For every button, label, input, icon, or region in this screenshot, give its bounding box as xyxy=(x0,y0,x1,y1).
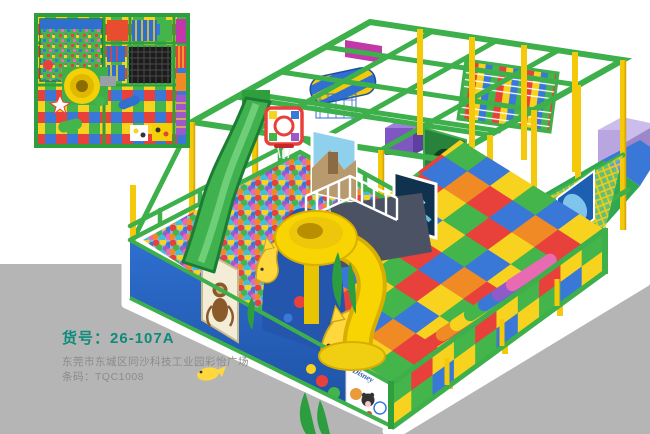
plan-gray-block xyxy=(100,76,116,86)
barcode-line: 条码：TQC1008 xyxy=(62,372,249,384)
product-code-label: 货号： xyxy=(62,330,110,347)
product-code-value: 26-107A xyxy=(110,330,175,347)
company-address: 东莞市东城区同沙科技工业园彩怡广场 xyxy=(62,357,249,369)
plan-magenta-mat xyxy=(176,19,186,43)
plan-striped-mat xyxy=(132,20,157,41)
barcode-value: TQC1008 xyxy=(95,371,144,383)
plan-green-ball xyxy=(95,96,105,106)
catalog-page: Disney xyxy=(0,0,650,434)
barcode-label: 条码： xyxy=(62,371,95,383)
floor-plan-thumbnail xyxy=(34,13,190,148)
plan-red-mat xyxy=(107,20,128,41)
plan-right-column xyxy=(176,46,186,135)
caption-block: 货号：26-107A 东莞市东城区同沙科技工业园彩怡广场 条码：TQC1008 xyxy=(62,331,249,384)
plan-green-mat xyxy=(160,20,172,41)
product-code: 货号：26-107A xyxy=(62,331,249,348)
plan-trampoline-mesh xyxy=(128,46,172,84)
plan-red-ball xyxy=(43,60,53,70)
